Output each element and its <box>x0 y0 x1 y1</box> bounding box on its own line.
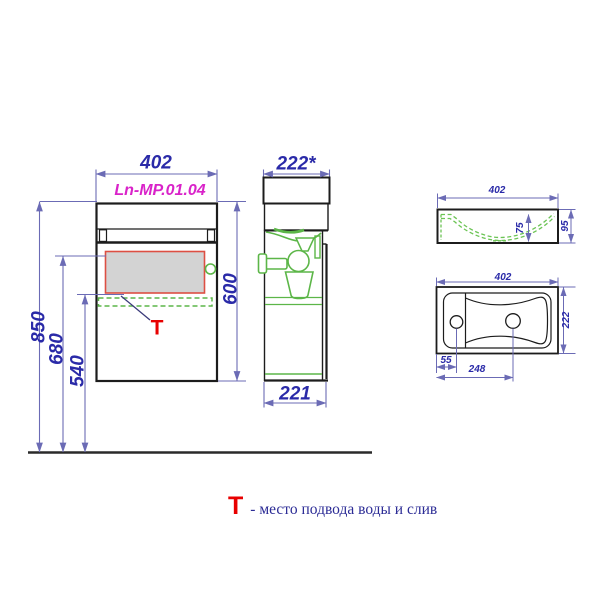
bowl-dashed-curves <box>441 214 555 241</box>
t-marker-leader-line <box>121 296 150 320</box>
sink-front-section-view <box>438 210 559 244</box>
drain-offset-dimension: 248 <box>469 365 486 375</box>
t-marker: Т <box>151 318 164 339</box>
sink-plan-view <box>437 287 559 354</box>
bowl-waist-outline <box>466 297 548 344</box>
sink-side-outline <box>264 178 330 204</box>
drain-zone-dashed-strip <box>99 298 213 306</box>
supply-bottom-dimension: 540 <box>69 355 88 387</box>
legend-t-symbol: Т <box>228 492 243 521</box>
side-depth-bottom-dimension: 221 <box>279 385 311 404</box>
front-view-dimensions <box>40 170 247 453</box>
legend: Т - место подвода воды и слив <box>228 492 437 521</box>
sink-height-dimension: 95 <box>561 220 571 231</box>
water-supply-zone <box>106 252 205 294</box>
plan-depth-dimension: 222 <box>562 312 572 329</box>
model-label: Ln-MP.01.04 <box>114 183 205 199</box>
plan-width-dimension: 402 <box>495 273 512 283</box>
sink-rim-outline <box>444 293 552 348</box>
cabinet-height-dimension: 600 <box>222 273 241 305</box>
tap-hole-icon <box>450 316 463 329</box>
side-depth-top-dimension: 222* <box>276 155 315 174</box>
supply-top-dimension: 680 <box>48 333 67 365</box>
bowl-depth-dimension: 75 <box>516 222 526 233</box>
side-view <box>259 178 330 381</box>
section-width-dimension: 402 <box>489 186 506 196</box>
rail-end-tick-left <box>100 230 107 242</box>
drain-hole-icon <box>506 314 521 329</box>
front-width-dimension: 402 <box>140 154 172 173</box>
vanity-dimension-drawing: 402 Ln-MP.01.04 850 680 540 600 Т 222* 2… <box>0 0 600 600</box>
rail-end-tick-right <box>208 230 215 242</box>
tap-offset-dimension: 55 <box>440 356 451 366</box>
door-handle-icon <box>206 264 216 274</box>
sink-section-dimensions <box>438 194 576 244</box>
cabinet-top-section <box>265 204 329 231</box>
siphon-plumbing-icon <box>259 229 323 374</box>
legend-text: - место подвода воды и слив <box>250 501 437 519</box>
